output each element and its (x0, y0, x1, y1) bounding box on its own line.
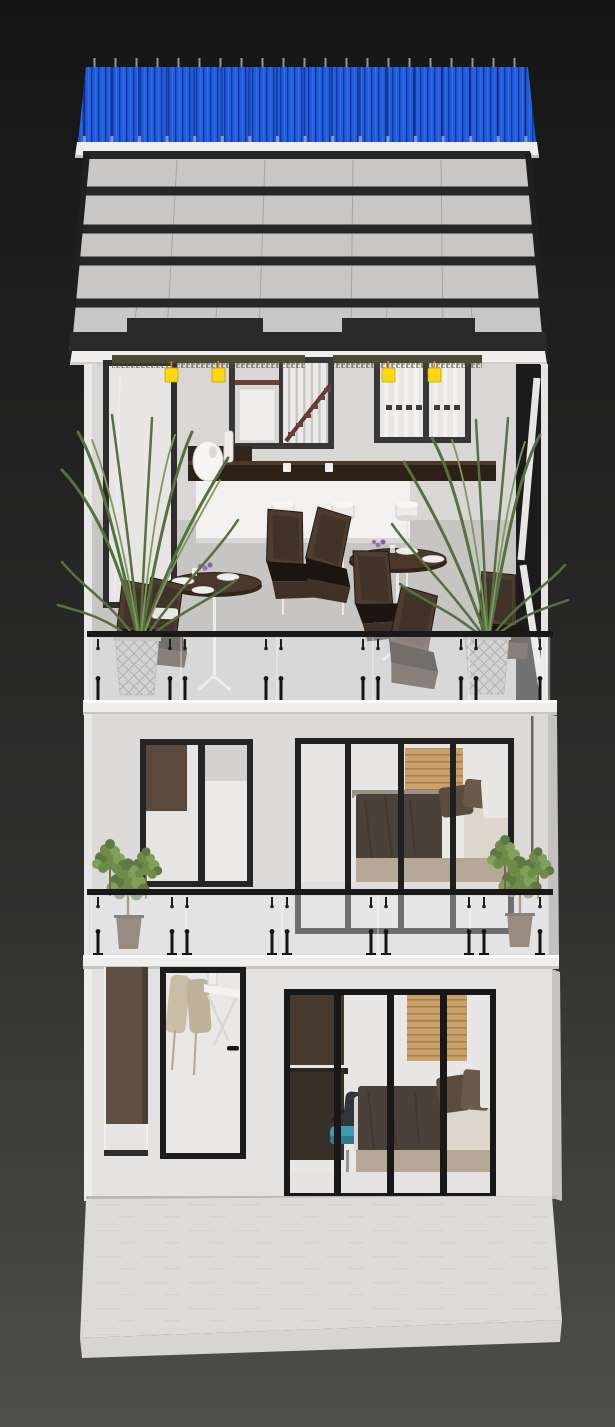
building-render (0, 0, 615, 1427)
pillow-white (481, 777, 512, 819)
balcony-balustrade (87, 889, 553, 957)
pane-tint (205, 745, 247, 781)
doorway-threshold (104, 1150, 148, 1156)
slat-lines (407, 995, 467, 1061)
door-handle[interactable] (227, 1046, 239, 1051)
balustrade-top-rail (87, 631, 553, 637)
egg-lamp-opening (209, 446, 217, 458)
plate (422, 556, 444, 563)
cup-1 (283, 463, 291, 472)
cup-2 (325, 463, 333, 472)
lantern-4 (428, 368, 441, 382)
bar-countertop-edge (188, 461, 496, 465)
attic-canopy (69, 153, 547, 365)
window-mullion (198, 745, 205, 881)
glass-wall-mullion (387, 995, 394, 1193)
balustrade-glass (90, 637, 550, 702)
glass-wall-mullion (440, 995, 447, 1193)
attic-vent-right (342, 318, 475, 333)
terrace-left-window (103, 360, 177, 608)
vine-fringe-right (333, 362, 482, 368)
stair-window-inner-panel (239, 389, 275, 441)
lantern-3 (382, 368, 395, 382)
ground-left-corner (84, 969, 92, 1201)
terrace-stair-window (229, 357, 334, 449)
plate (192, 587, 214, 594)
balustrade-top-rail (87, 889, 553, 895)
ground-glass-wall (284, 989, 498, 1201)
dining-interior (165, 970, 240, 1153)
viewport-background: 3D architectural render of a narrow thre… (0, 0, 615, 1427)
floor-ground (80, 967, 562, 1358)
forecourt-texture (80, 1196, 562, 1338)
terrace-slab-highlight (83, 700, 557, 703)
floor-rooftop-terrace (58, 355, 568, 715)
entry-doorway (104, 967, 148, 1157)
stair-shelf-bar (235, 380, 279, 385)
glass-entry-door[interactable] (160, 967, 246, 1159)
lantern-1 (165, 368, 178, 382)
drinking-glass (390, 545, 395, 553)
floor-middle-bedroom (83, 714, 559, 969)
lantern-2 (212, 368, 225, 382)
roof-panel-seams (78, 67, 536, 142)
ground-right-face (552, 969, 562, 1201)
roof-eave-tabs (80, 136, 532, 143)
terrace-balustrade (87, 631, 553, 704)
interior-cabinet (146, 745, 187, 811)
doorway-panel-edge (142, 967, 148, 1124)
vine-fringe-left (112, 362, 305, 368)
doorway-brown-panel (106, 967, 146, 1124)
bed-base (356, 1150, 498, 1174)
vine-strip-left (112, 355, 305, 363)
roof (75, 58, 539, 158)
balcony-slab-shadow (83, 966, 559, 969)
glass-wall-mullion (334, 995, 341, 1193)
balcony-slab-highlight (83, 955, 559, 958)
attic-bottom-band (69, 332, 547, 351)
attic-vent-left (127, 318, 263, 333)
vine-strip-right (333, 355, 482, 363)
balustrade-glass (90, 895, 550, 955)
